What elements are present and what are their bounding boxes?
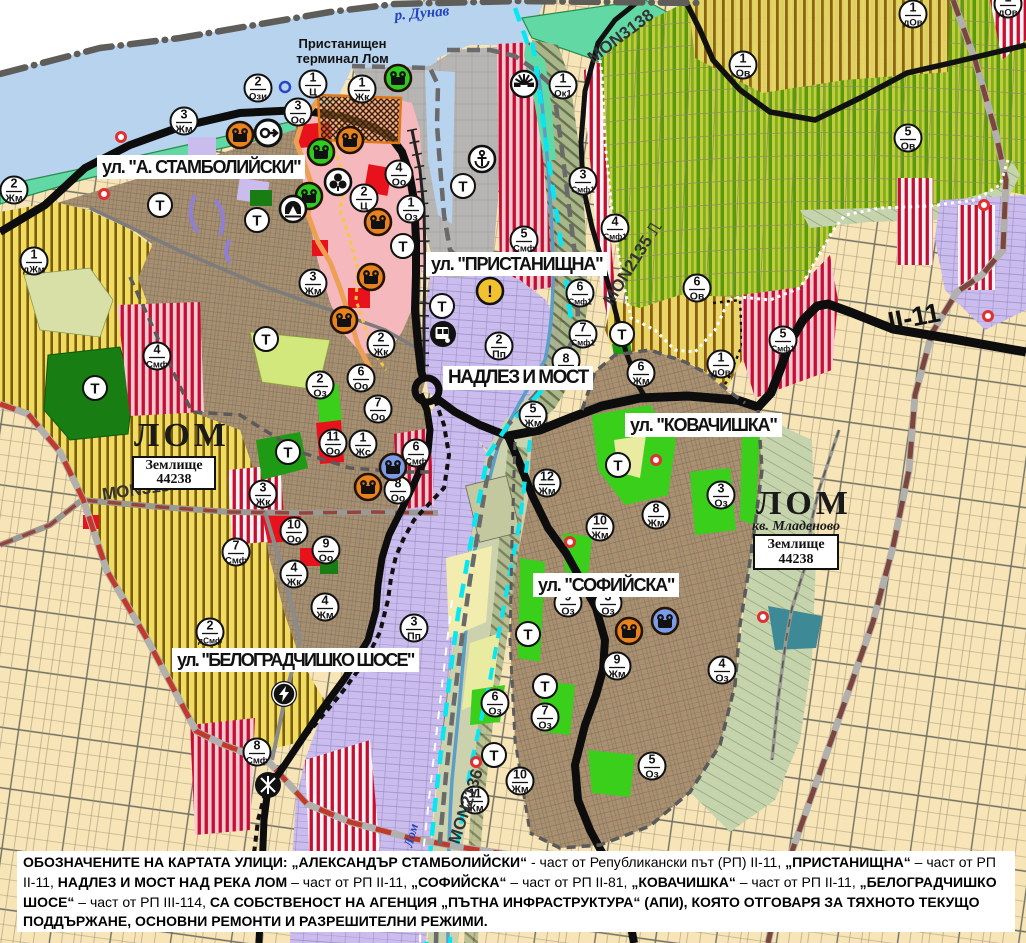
- svg-text:Лом: Лом: [400, 822, 421, 850]
- svg-text:MON2135 ⎍: MON2135 ⎍: [599, 218, 665, 308]
- svg-text:кв. Младеново: кв. Младеново: [752, 519, 840, 534]
- svg-text:MON3138: MON3138: [584, 5, 657, 67]
- svg-text:ЛОМ: ЛОМ: [134, 417, 230, 454]
- svg-text:ЛОМ: ЛОМ: [756, 485, 852, 522]
- svg-text:MON2136: MON2136: [445, 767, 487, 847]
- svg-text:р. Дунав: р. Дунав: [392, 3, 450, 24]
- svg-text:II-11: II-11: [885, 297, 942, 336]
